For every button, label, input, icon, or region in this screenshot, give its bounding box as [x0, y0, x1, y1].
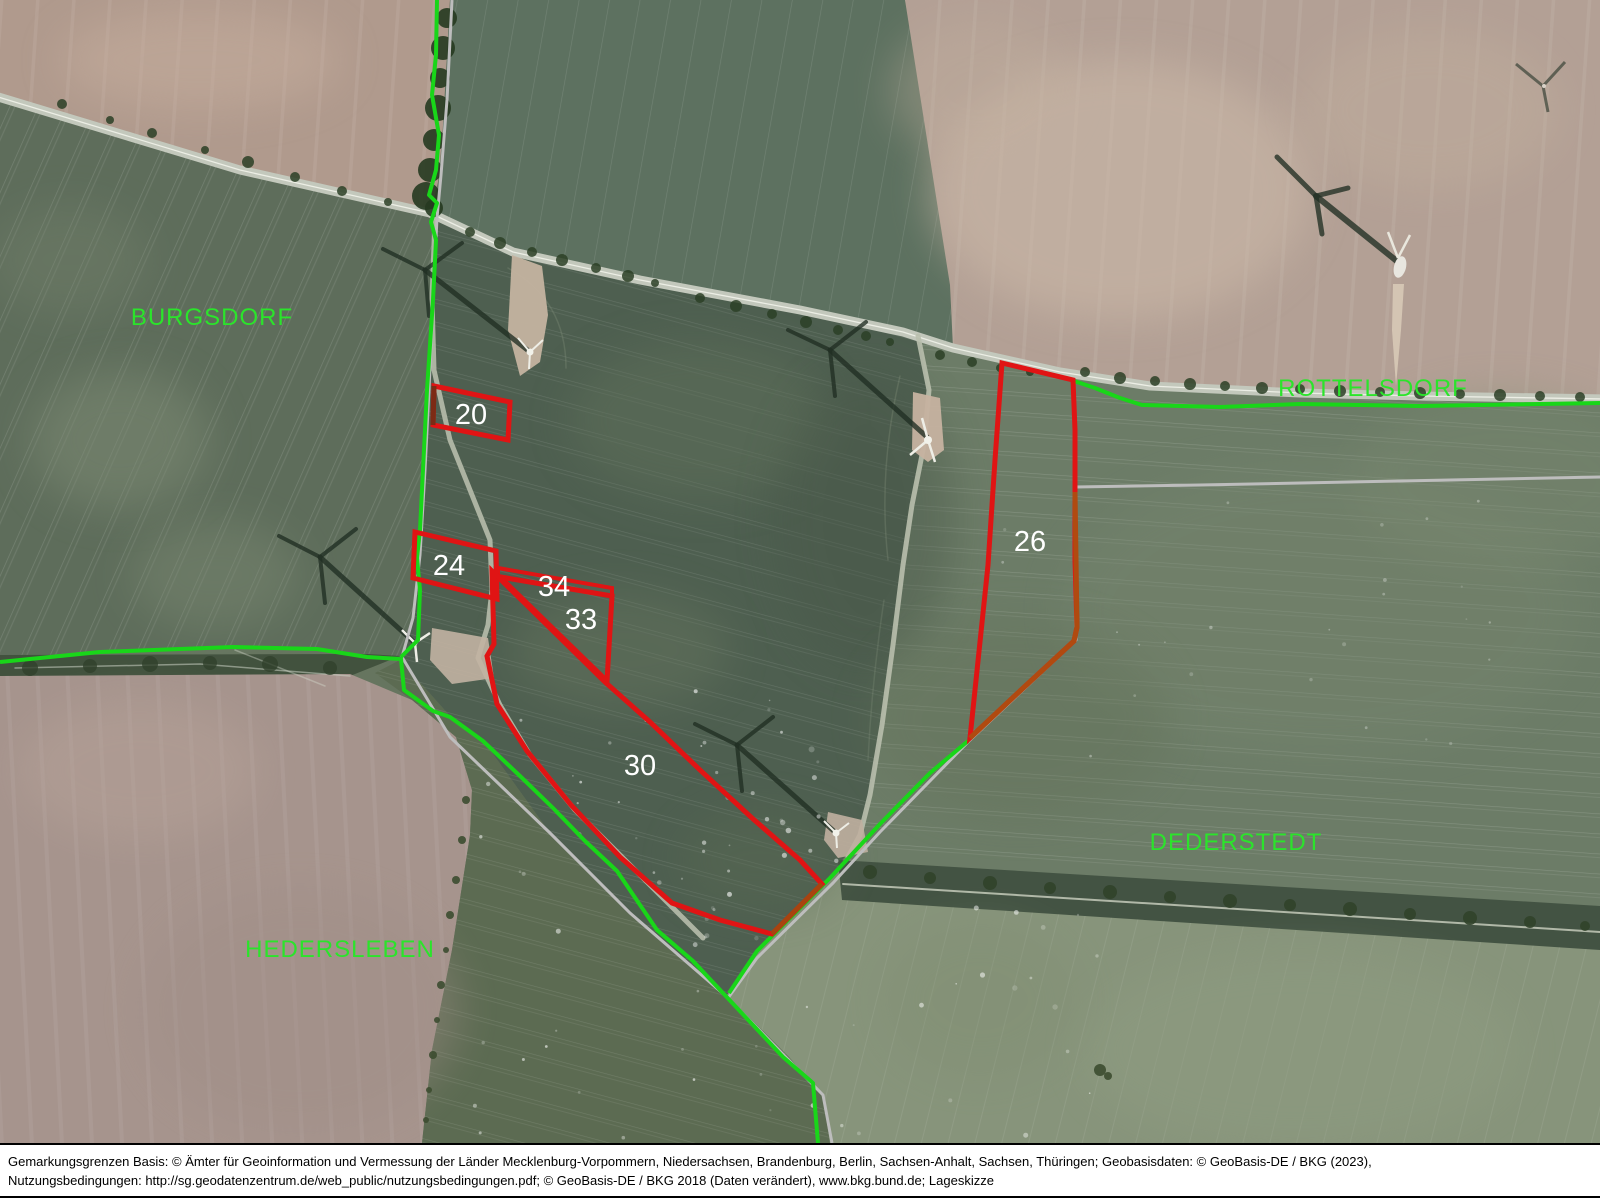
- place-label-hedersleben: HEDERSLEBEN: [245, 936, 435, 963]
- attribution-footer: Gemarkungsgrenzen Basis: © Ämter für Geo…: [0, 1143, 1600, 1198]
- place-label-burgsdorf: BURGSDORF: [131, 304, 293, 331]
- map-canvas: 20 24 34 33 30 26 BURGSDORF ROTTELSDORF …: [0, 0, 1600, 1143]
- parcel-label-20: 20: [455, 399, 487, 431]
- parcel-20-dark-edge: [433, 386, 434, 425]
- lageskizze-screenshot: { "map": { "title": "Lageskizze", "place…: [0, 0, 1600, 1200]
- attribution-line1: Gemarkungsgrenzen Basis: © Ämter für Geo…: [8, 1152, 1594, 1171]
- place-label-rottelsdorf: ROTTELSDORF: [1278, 375, 1468, 402]
- parcel-label-26: 26: [1014, 526, 1046, 558]
- parcel-label-24: 24: [433, 550, 465, 582]
- attribution-line2: Nutzungsbedingungen: http://sg.geodatenz…: [8, 1171, 1594, 1190]
- parcel-label-33: 33: [565, 604, 597, 636]
- parcel-label-30: 30: [624, 750, 656, 782]
- parcel-label-34: 34: [538, 571, 570, 603]
- place-label-dederstedt: DEDERSTEDT: [1150, 829, 1323, 856]
